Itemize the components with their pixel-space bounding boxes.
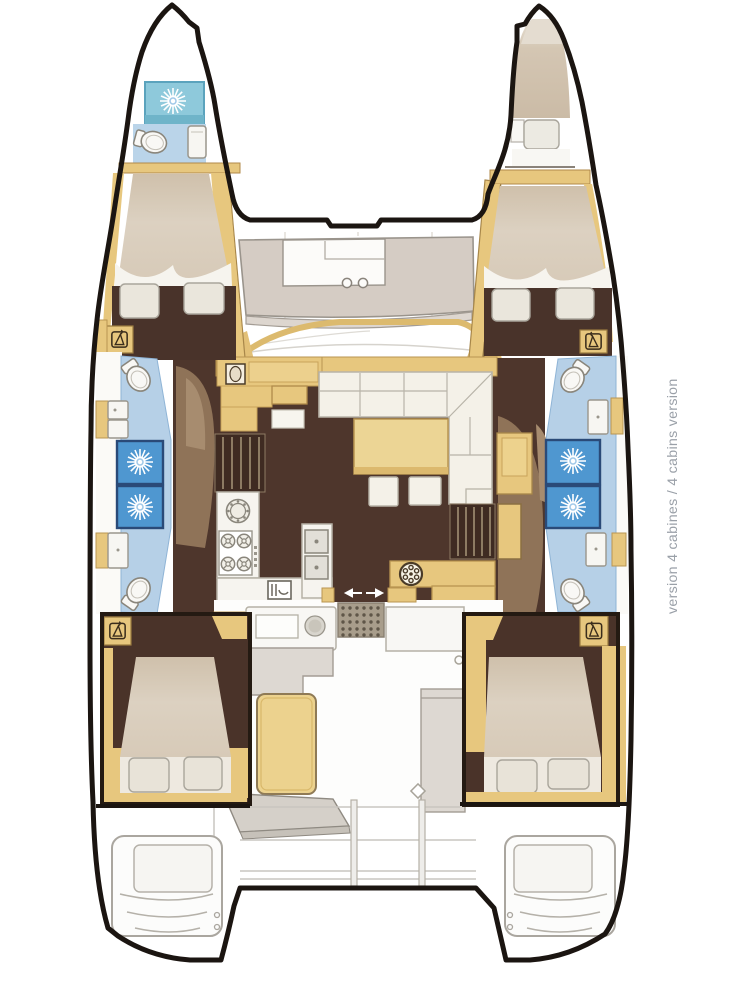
svg-text:version 4 cabines / 4 cabins v: version 4 cabines / 4 cabins version xyxy=(665,378,681,614)
